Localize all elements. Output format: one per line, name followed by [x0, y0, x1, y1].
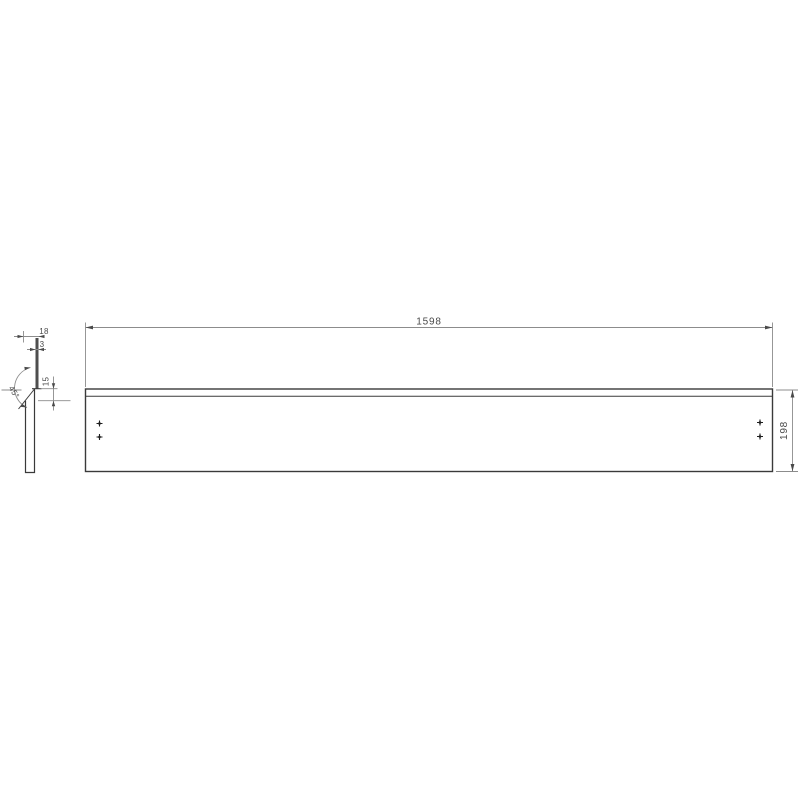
- hole-mark: [757, 434, 763, 440]
- dim-arrow: [52, 401, 55, 407]
- dim-edge-label: 3: [40, 340, 45, 349]
- dim-height: 198: [776, 390, 798, 472]
- dim-arrow: [18, 335, 24, 338]
- dim-arrow: [52, 383, 55, 389]
- dim-bevel-height: 15: [38, 377, 71, 411]
- dim-arrow: [30, 348, 36, 351]
- side-view-top-strip: [36, 338, 39, 389]
- dim-width: 1598: [86, 317, 773, 388]
- drawing-canvas: 1598 198 18 3: [0, 0, 800, 800]
- dim-arrow: [765, 326, 773, 330]
- hole-mark: [757, 420, 763, 426]
- hole-mark: [97, 421, 103, 427]
- hole-mark: [97, 434, 103, 440]
- bevel-line: [19, 389, 35, 409]
- side-view-body: [26, 389, 35, 473]
- dim-thickness-label: 18: [39, 327, 49, 336]
- front-view-outline: [86, 389, 773, 472]
- side-view: 18 3 15 45°: [2, 327, 71, 473]
- dim-width-label: 1598: [416, 317, 441, 328]
- dim-arrow: [24, 367, 30, 370]
- dim-height-label: 198: [779, 421, 790, 440]
- dim-bevel-angle: 45°: [2, 367, 31, 408]
- dim-arrow: [791, 390, 795, 398]
- front-view: [86, 389, 773, 472]
- part-drawing: 1598 198 18 3: [0, 0, 800, 800]
- dim-bevel-depth-label: 15: [42, 377, 51, 387]
- dim-bevel-angle-label: 45°: [7, 384, 22, 400]
- dim-arrow: [86, 326, 94, 330]
- dim-arrow: [791, 464, 795, 472]
